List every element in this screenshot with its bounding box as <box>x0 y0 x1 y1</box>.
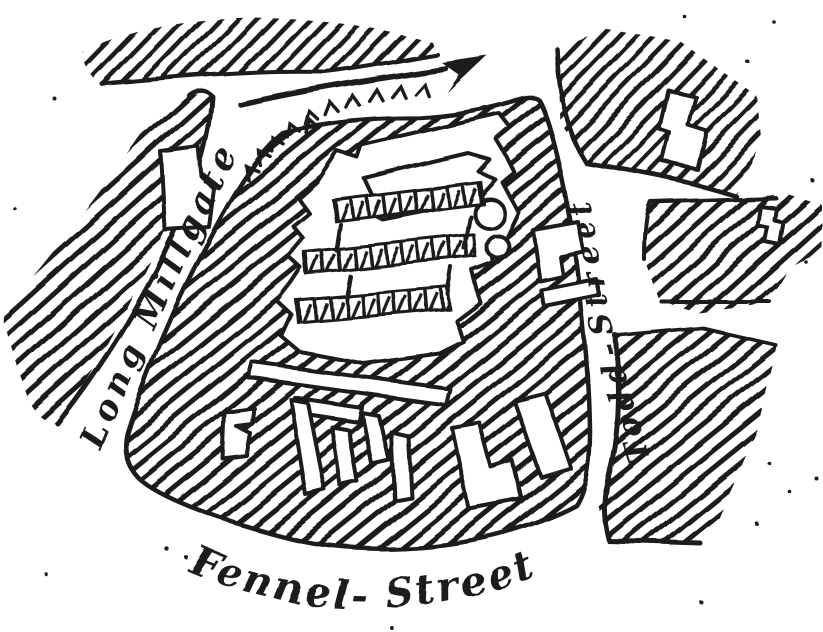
east-block-hatch <box>644 194 821 313</box>
map-page: Long Millgate Todd-Street Fennel- Street <box>0 0 823 632</box>
south-building-slab-4 <box>391 432 411 500</box>
complex-apse-small <box>486 235 508 257</box>
route-arrow-head <box>441 55 487 93</box>
map-canvas: Long Millgate Todd-Street Fennel- Street <box>0 0 823 632</box>
northeast-block-hatch <box>556 28 762 196</box>
